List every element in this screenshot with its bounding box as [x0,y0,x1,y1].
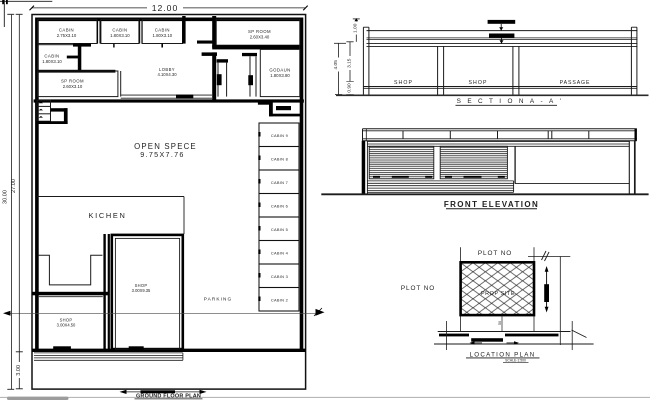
svg-text:SP ROOM: SP ROOM [61,79,84,84]
svg-text:CABIN: CABIN [59,28,74,33]
svg-text:SECTIONA-A': SECTIONA-A' [457,98,568,105]
svg-text:PARKING: PARKING [204,297,232,302]
svg-text:0.90: 0.90 [346,83,352,93]
svg-text:CABIN: CABIN [44,54,59,59]
svg-text:PROP SITE: PROP SITE [481,291,515,297]
svg-text:SHOP: SHOP [394,80,413,86]
svg-text:CABIN 9: CABIN 9 [271,133,288,138]
svg-text:CABIN 5: CABIN 5 [271,227,288,232]
svg-text:12.00: 12.00 [152,3,179,13]
svg-text:LOCATION PLAN: LOCATION PLAN [470,351,536,358]
svg-text:4.10X4.30: 4.10X4.30 [157,72,177,77]
svg-text:PLOT NO: PLOT NO [478,250,512,257]
svg-text:SHOP: SHOP [135,283,148,288]
svg-text:CABIN 4: CABIN 4 [271,250,289,255]
svg-text:27.00: 27.00 [11,179,17,193]
svg-text:KICHEN: KICHEN [88,211,126,220]
svg-text:CABIN 3: CABIN 3 [271,274,288,279]
svg-text:3.15: 3.15 [346,58,352,68]
svg-text:PLOT NO: PLOT NO [401,285,435,292]
svg-text:CABIN: CABIN [155,28,170,33]
svg-text:1.00: 1.00 [353,23,359,33]
svg-text:9.75X7.76: 9.75X7.76 [140,150,184,159]
svg-text:CABIN 8: CABIN 8 [271,156,288,161]
svg-text:2.60X3.40: 2.60X3.40 [250,35,270,40]
svg-text:4.05: 4.05 [333,60,339,70]
svg-text:1.80X3.10: 1.80X3.10 [153,33,173,38]
svg-text:30.00: 30.00 [3,190,9,204]
svg-text:FRONT ELEVATION: FRONT ELEVATION [444,200,539,209]
svg-text:CABIN 7: CABIN 7 [271,180,288,185]
svg-text:CABIN 2: CABIN 2 [271,297,288,302]
svg-text:CABIN: CABIN [112,28,127,33]
svg-text:3.00X4.50: 3.00X4.50 [57,323,76,328]
svg-text:PASSAGE: PASSAGE [560,80,591,86]
svg-text:1.80X3.10: 1.80X3.10 [110,33,130,38]
svg-text:2.60X3.10: 2.60X3.10 [63,84,83,89]
svg-text:1.80X3.80: 1.80X3.80 [270,73,290,78]
svg-text:SP ROOM: SP ROOM [248,29,271,34]
svg-text:CABIN 6: CABIN 6 [271,203,288,208]
svg-text:SHOP: SHOP [60,317,73,322]
svg-text:3.00X9.35: 3.00X9.35 [132,288,151,293]
svg-text:3.00: 3.00 [16,365,22,376]
svg-text:50: 50 [498,321,502,325]
svg-text:GODAUN: GODAUN [269,68,290,73]
svg-text:SCALE-1:500: SCALE-1:500 [505,358,526,362]
svg-text:SHOP: SHOP [468,80,487,86]
svg-text:1.80X3.10: 1.80X3.10 [42,59,62,64]
svg-text:2.75X3.10: 2.75X3.10 [57,33,77,38]
